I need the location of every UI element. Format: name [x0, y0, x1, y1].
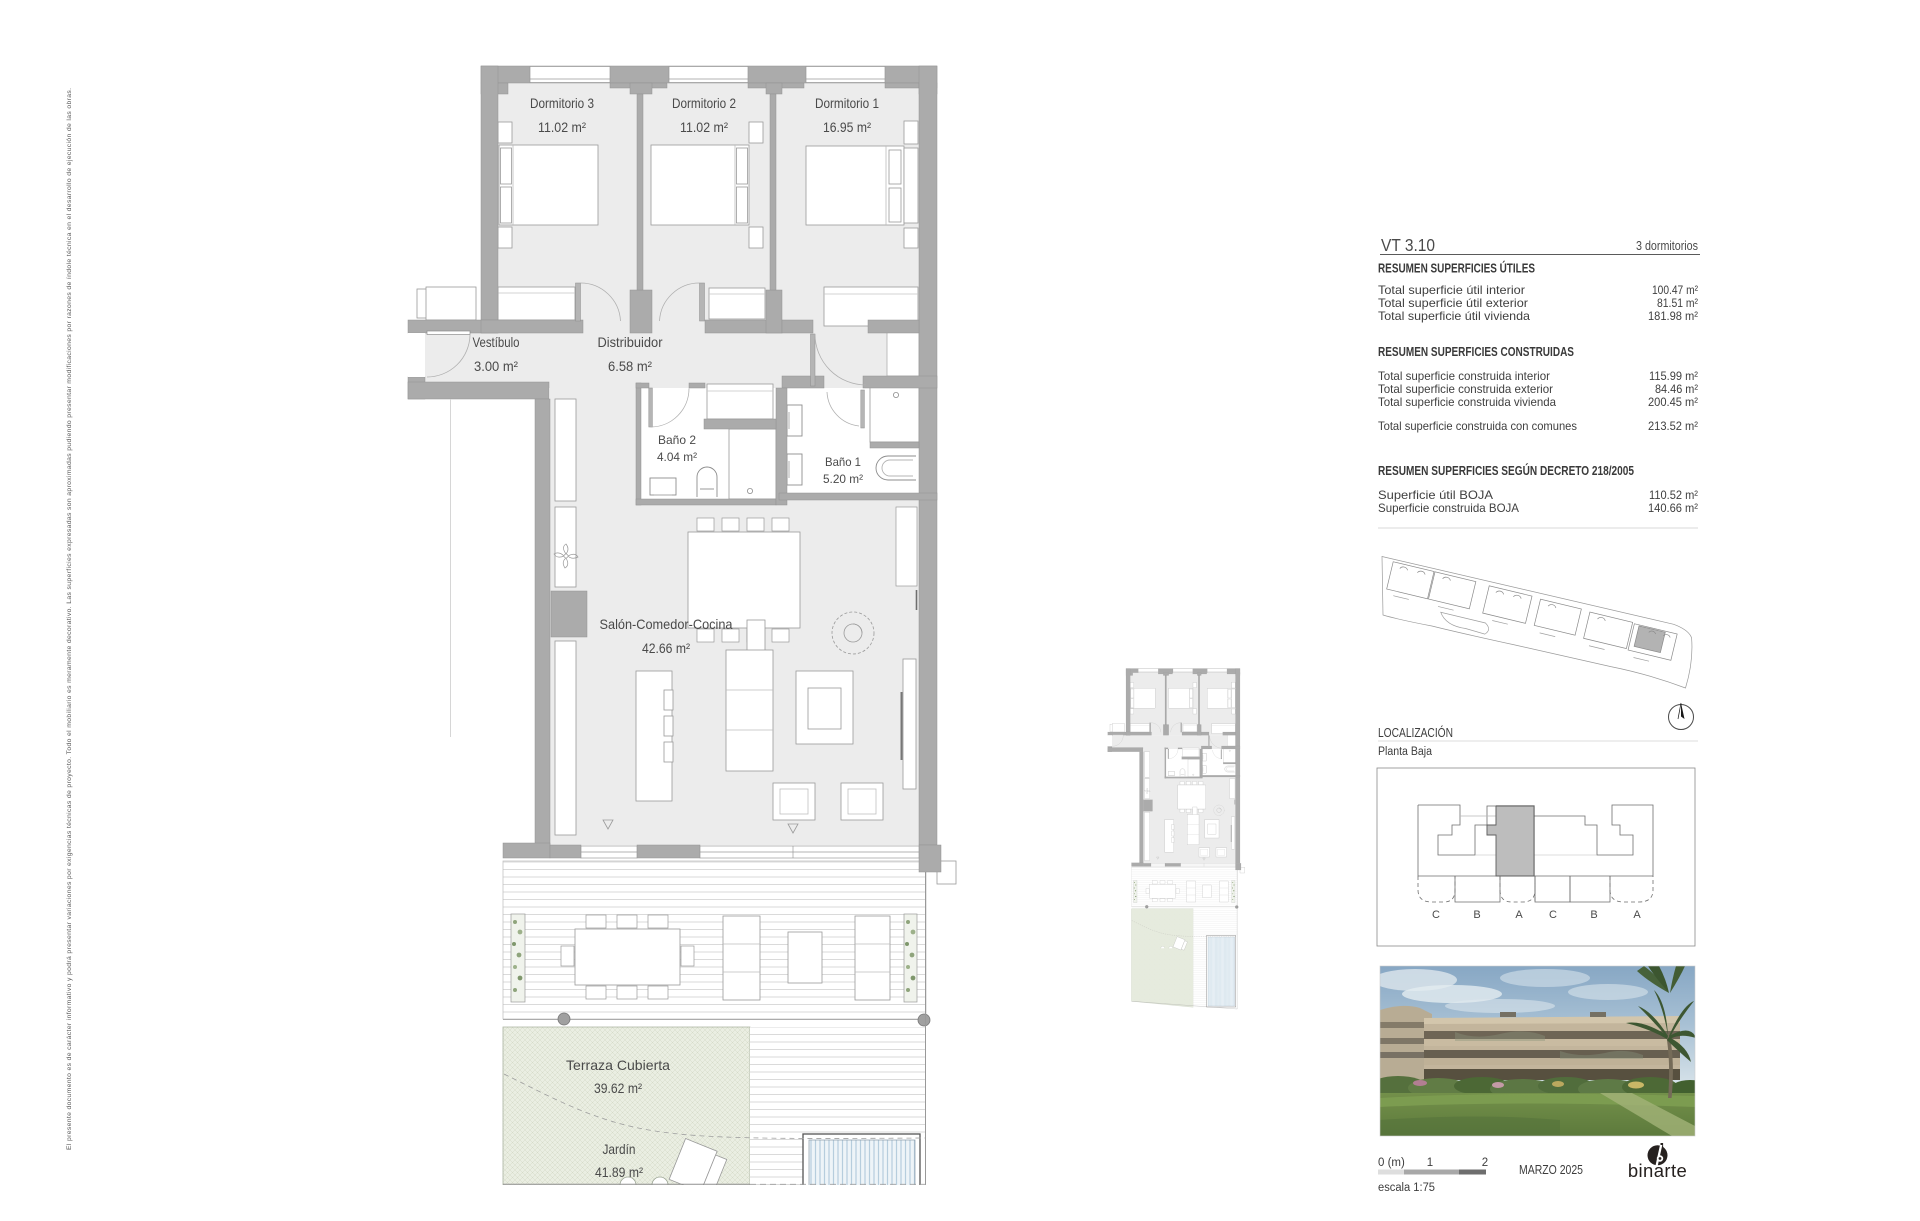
- svg-text:MARZO 2025: MARZO 2025: [1519, 1163, 1583, 1177]
- svg-text:6.58 m²: 6.58 m²: [608, 358, 652, 374]
- svg-text:16.95 m²: 16.95 m²: [823, 119, 871, 135]
- svg-text:Total superficie construida co: Total superficie construida con comunes: [1378, 419, 1577, 433]
- svg-text:LOCALIZACIÓN: LOCALIZACIÓN: [1378, 725, 1453, 740]
- svg-text:100.47 m²: 100.47 m²: [1652, 283, 1698, 297]
- svg-text:Superficie construida BOJA: Superficie construida BOJA: [1378, 501, 1519, 515]
- svg-text:Dormitorio 3: Dormitorio 3: [530, 95, 594, 111]
- svg-text:RESUMEN SUPERFICIES ÚTILES: RESUMEN SUPERFICIES ÚTILES: [1378, 261, 1535, 276]
- svg-text:B: B: [1590, 909, 1597, 921]
- svg-text:escala 1:75: escala 1:75: [1378, 1182, 1435, 1194]
- svg-text:Total superficie útil exterior: Total superficie útil exterior: [1378, 296, 1528, 310]
- svg-text:Baño 2: Baño 2: [658, 433, 696, 447]
- svg-text:El presente documento es de ca: El presente documento es de carácter inf…: [66, 88, 73, 1150]
- svg-text:binarte: binarte: [1628, 1160, 1687, 1181]
- svg-text:Terraza Cubierta: Terraza Cubierta: [566, 1057, 670, 1073]
- svg-text:110.52 m²: 110.52 m²: [1649, 488, 1698, 502]
- svg-text:C: C: [1549, 909, 1557, 921]
- svg-text:84.46 m²: 84.46 m²: [1655, 382, 1698, 396]
- svg-text:Baño 1: Baño 1: [825, 455, 861, 469]
- svg-text:Total superficie construida in: Total superficie construida interior: [1378, 369, 1550, 383]
- svg-text:VT 3.10: VT 3.10: [1381, 235, 1435, 255]
- svg-text:0 (m): 0 (m): [1378, 1157, 1405, 1169]
- svg-text:A: A: [1633, 909, 1641, 921]
- svg-text:Vestíbulo: Vestíbulo: [473, 334, 520, 350]
- svg-text:181.98 m²: 181.98 m²: [1648, 309, 1698, 323]
- svg-text:5.20 m²: 5.20 m²: [823, 472, 863, 486]
- svg-text:213.52 m²: 213.52 m²: [1648, 419, 1698, 433]
- svg-text:C: C: [1432, 909, 1440, 921]
- svg-text:42.66 m²: 42.66 m²: [642, 640, 690, 656]
- svg-text:115.99 m²: 115.99 m²: [1649, 369, 1698, 383]
- svg-text:Total superficie construida vi: Total superficie construida vivienda: [1378, 395, 1556, 409]
- svg-text:4.04 m²: 4.04 m²: [657, 450, 697, 464]
- svg-text:Superficie útil BOJA: Superficie útil BOJA: [1378, 488, 1493, 502]
- svg-text:Total superficie construida ex: Total superficie construida exterior: [1378, 382, 1553, 396]
- svg-text:Salón-Comedor-Cocina: Salón-Comedor-Cocina: [600, 616, 733, 632]
- svg-text:3 dormitorios: 3 dormitorios: [1636, 238, 1698, 253]
- svg-text:140.66 m²: 140.66 m²: [1648, 501, 1698, 515]
- svg-text:3.00 m²: 3.00 m²: [474, 358, 518, 374]
- svg-text:Planta Baja: Planta Baja: [1378, 746, 1433, 758]
- svg-text:RESUMEN SUPERFICIES SEGÚN DECR: RESUMEN SUPERFICIES SEGÚN DECRETO 218/20…: [1378, 463, 1634, 478]
- svg-text:11.02 m²: 11.02 m²: [538, 119, 586, 135]
- svg-text:41.89 m²: 41.89 m²: [595, 1164, 643, 1180]
- svg-text:Distribuidor: Distribuidor: [598, 334, 663, 350]
- svg-text:Jardín: Jardín: [603, 1141, 636, 1157]
- svg-text:Dormitorio 1: Dormitorio 1: [815, 95, 879, 111]
- svg-text:39.62 m²: 39.62 m²: [594, 1080, 642, 1096]
- svg-text:200.45 m²: 200.45 m²: [1648, 395, 1698, 409]
- svg-text:Total superficie útil vivienda: Total superficie útil vivienda: [1378, 309, 1530, 323]
- svg-text:1: 1: [1427, 1157, 1433, 1169]
- svg-text:Dormitorio 2: Dormitorio 2: [672, 95, 736, 111]
- svg-text:11.02 m²: 11.02 m²: [680, 119, 728, 135]
- svg-text:A: A: [1515, 909, 1523, 921]
- svg-text:81.51 m²: 81.51 m²: [1657, 296, 1698, 310]
- svg-text:B: B: [1473, 909, 1480, 921]
- svg-text:RESUMEN SUPERFICIES CONSTRUIDA: RESUMEN SUPERFICIES CONSTRUIDAS: [1378, 345, 1574, 359]
- svg-text:Total superficie útil interior: Total superficie útil interior: [1378, 283, 1525, 297]
- svg-text:2: 2: [1482, 1157, 1488, 1169]
